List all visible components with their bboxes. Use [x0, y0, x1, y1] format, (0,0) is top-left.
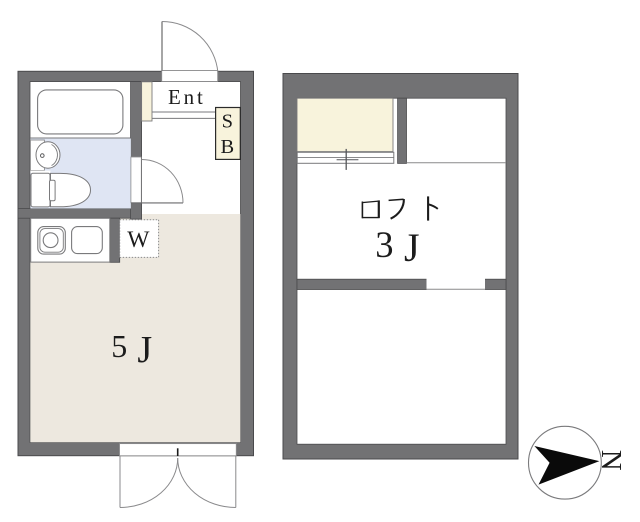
svg-text:W: W: [127, 227, 150, 253]
svg-text:5: 5: [111, 328, 127, 364]
svg-text:J: J: [404, 225, 420, 270]
svg-text:S: S: [222, 110, 233, 132]
svg-text:3: 3: [375, 224, 393, 265]
svg-text:Ent: Ent: [168, 85, 206, 109]
svg-text:J: J: [137, 329, 152, 371]
svg-text:N: N: [595, 450, 627, 471]
svg-text:B: B: [220, 136, 234, 158]
